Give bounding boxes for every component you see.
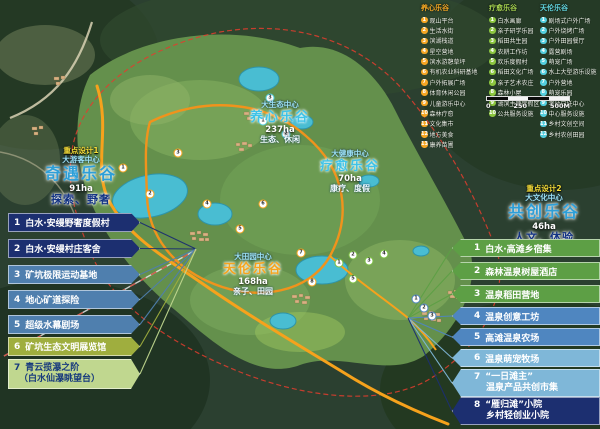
callout-line-1: 7青云揽瀑之阶 <box>8 363 140 374</box>
scale-tick: 0 <box>486 102 491 110</box>
valley-name: 共创乐谷 <box>492 203 596 222</box>
callout-right-4: 4温泉创意工坊 <box>452 307 600 325</box>
valley-area: 70ha <box>312 174 388 184</box>
legend-item: 10中心服务设施 <box>540 109 599 118</box>
legend-item-label: 亲子艺术农庄 <box>498 78 534 87</box>
legend-number-badge: 4 <box>540 48 547 55</box>
legend-number-badge: 12 <box>540 131 547 138</box>
legend-item: 5萌宠广场 <box>540 57 599 66</box>
legend-number-badge: 8 <box>421 89 428 96</box>
callout-right-5: 5高滩温泉农场 <box>452 328 600 346</box>
callout-label: 乡村轻创业小院 <box>486 411 549 422</box>
legend-number-badge: 10 <box>489 110 496 117</box>
legend-number-badge: 10 <box>421 110 428 117</box>
callout-line-2: 温泉产品共创市集 <box>452 383 600 394</box>
legend-number-badge: 4 <box>489 48 496 55</box>
legend-item: 11乡村文创空间 <box>540 119 599 128</box>
valley-area: 237ha <box>238 125 322 135</box>
legend-item-label: 白水画廊 <box>498 16 522 25</box>
valley-area: 168ha <box>210 277 296 287</box>
legend-item: 11文化集市 <box>421 119 487 128</box>
center-label: 大田园中心 <box>210 253 296 262</box>
legend-number-badge: 7 <box>540 79 547 86</box>
valley-theme: 亲子、田园 <box>210 287 296 296</box>
scale-tick: 500M <box>550 102 570 110</box>
legend-item: 12乡村农创田园 <box>540 130 599 139</box>
callout-label: 矿坑极限运动基地 <box>25 268 97 281</box>
legend-item: 2生活水街 <box>421 26 487 35</box>
callout-right-8: 8“雁归滩”小院 乡村轻创业小院 <box>452 397 600 425</box>
callout-number: 5 <box>474 332 480 342</box>
legend-number-badge: 13 <box>421 141 428 148</box>
master-plan-map: 1234567812345123123 养心乐谷 1观山平台 2生活水街 3滨湖… <box>0 0 600 429</box>
legend-item-label: 户外拓展广场 <box>430 78 466 87</box>
callout-right-2: 2森林温泉树屋酒店 <box>452 262 600 280</box>
valley-theme: 康疗、度假 <box>312 184 388 193</box>
legend-number-badge: 2 <box>421 27 428 34</box>
callout-left-6: 6矿坑生态文明展览馆 <box>8 337 140 356</box>
callout-right-7: 7“一日滩主” 温泉产品共创市集 <box>452 369 600 397</box>
callout-line-1: 8“雁归滩”小院 <box>452 400 600 411</box>
legend-item-label: 地方美食 <box>430 130 454 139</box>
legend-item: 8体育休闲公园 <box>421 88 487 97</box>
legend-item-label: 稻田文化广场 <box>498 67 534 76</box>
callout-left-1: 1白水·安缦野奢度假村 <box>8 213 140 232</box>
callout-line-2: （白水仙瀑眺望台） <box>8 374 140 385</box>
legend-item: 9儿童游乐中心 <box>421 99 487 108</box>
legend-number-badge: 2 <box>540 27 547 34</box>
valley-name: 奇遇乐谷 <box>22 165 140 184</box>
callout-right-6: 6温泉萌宠牧场 <box>452 349 600 367</box>
callout-number: 8 <box>474 400 480 411</box>
valley-name: 天伦乐谷 <box>210 262 296 277</box>
legend-item-label: 户外营地 <box>549 78 573 87</box>
legend-item-label: 文化集市 <box>430 119 454 128</box>
callout-left-7: 7青云揽瀑之阶 （白水仙瀑眺望台） <box>8 359 140 389</box>
callout-number: 2 <box>474 266 480 276</box>
legend-item-label: 体育休闲公园 <box>430 88 466 97</box>
legend-number-badge: 5 <box>540 58 547 65</box>
callout-right-3: 3温泉稻田营地 <box>452 285 600 303</box>
callout-label: 温泉创意工坊 <box>485 310 539 323</box>
region-label-tianlun: 大田园中心 天伦乐谷 168ha 亲子、田园 <box>210 253 296 297</box>
legend-item: 4星空营地 <box>421 47 487 56</box>
legend-number-badge: 7 <box>421 79 428 86</box>
legend-header: 养心乐谷 <box>421 3 487 13</box>
region-label-qiyu: 重点设计1 大游客中心 奇遇乐谷 91ha 探索、野奢 <box>22 147 140 207</box>
scale-bar: 0 250 500M <box>486 96 570 110</box>
legend-number-badge: 1 <box>540 17 547 24</box>
legend-number-badge: 11 <box>540 121 547 128</box>
legend-item-label: 户外烧烤广场 <box>549 26 585 35</box>
legend-item-label: 康养苗圃 <box>430 140 454 149</box>
legend-number-badge: 1 <box>489 17 496 24</box>
legend-number-badge: 3 <box>421 38 428 45</box>
legend-number-badge: 10 <box>540 110 547 117</box>
legend-item: 5欢乐度假村 <box>489 57 539 66</box>
legend-item-label: 星空营地 <box>430 47 454 56</box>
callout-label: 白水·安缦野奢度假村 <box>25 216 109 229</box>
legend-number-badge: 3 <box>540 38 547 45</box>
legend-item-label: 户外田园餐厅 <box>549 36 585 45</box>
valley-name: 疗愈乐谷 <box>312 159 388 174</box>
legend-item: 7亲子艺术农庄 <box>489 78 539 87</box>
legend-number-badge: 6 <box>489 69 496 76</box>
legend-number-badge: 12 <box>421 131 428 138</box>
legend-item-label: 水上大型游乐设施 <box>549 67 597 76</box>
legend-number-badge: 5 <box>489 58 496 65</box>
legend-item: 3滨湖栈道 <box>421 36 487 45</box>
legend-item-label: 亲子研学乐园 <box>498 26 534 35</box>
callout-label: “雁归滩”小院 <box>485 400 542 411</box>
callout-label: 森林温泉树屋酒店 <box>485 265 557 278</box>
scale-bar-segments <box>486 96 570 101</box>
legend-item: 2户外烧烤广场 <box>540 26 599 35</box>
legend-item: 4露营剧场 <box>540 47 599 56</box>
legend-number-badge: 1 <box>421 17 428 24</box>
legend-number-badge: 3 <box>489 38 496 45</box>
legend-number-badge: 8 <box>540 89 547 96</box>
legend-item: 4农耕工作坊 <box>489 47 539 56</box>
callout-label: “一日滩主” <box>485 372 533 383</box>
legend-item: 7户外拓展广场 <box>421 78 487 87</box>
callout-label: 白水·高滩乡宿集 <box>485 242 551 255</box>
region-label-gongchuang: 重点设计2 大文化中心 共创乐谷 46ha 人文、体验 <box>492 185 596 245</box>
callout-number: 6 <box>474 353 480 363</box>
legend-item-label: 中心服务设施 <box>549 109 585 118</box>
callout-label: 温泉稻田营地 <box>485 288 539 301</box>
legend-item-label: 森林疗愈 <box>430 109 454 118</box>
callout-number: 7 <box>474 372 480 383</box>
callout-label: 地心矿道探险 <box>25 293 79 306</box>
legend-item-label: 有机农业科研基地 <box>430 67 478 76</box>
valley-theme: 探索、野奢 <box>22 194 140 207</box>
callout-number: 1 <box>474 243 480 253</box>
legend-number-badge: 4 <box>421 48 428 55</box>
legend-item: 6水上大型游乐设施 <box>540 67 599 76</box>
legend-item: 10森林疗愈 <box>421 109 487 118</box>
legend-item: 7户外营地 <box>540 78 599 87</box>
legend-item-label: 萌宠广场 <box>549 57 573 66</box>
legend-column-yangxin: 养心乐谷 1观山平台 2生活水街 3滨湖栈道 4星空营地 5滨水游憩草坪 6有机… <box>421 3 487 151</box>
legend-item: 10公共服务设施 <box>489 109 539 118</box>
legend-item: 3户外田园餐厅 <box>540 36 599 45</box>
legend-item: 1白水画廊 <box>489 16 539 25</box>
legend-item-label: 稻田共生园 <box>498 36 528 45</box>
legend-item-label: 农耕工作坊 <box>498 47 528 56</box>
callout-left-2: 2白水·安缦村庄客舍 <box>8 239 140 258</box>
center-label: 大生态中心 <box>238 101 322 110</box>
callout-label: 白水·安缦村庄客舍 <box>25 242 100 255</box>
callout-number: 4 <box>14 295 20 305</box>
legend-item-label: 乡村文创空间 <box>549 119 585 128</box>
legend-item-label: 露营剧场 <box>549 47 573 56</box>
legend-item: 5滨水游憩草坪 <box>421 57 487 66</box>
region-label-liaoyu: 大健康中心 疗愈乐谷 70ha 康疗、度假 <box>312 150 388 194</box>
legend-item: 1观山平台 <box>421 16 487 25</box>
legend-number-badge: 2 <box>489 27 496 34</box>
legend-item-label: 观山平台 <box>430 16 454 25</box>
legend-item: 12地方美食 <box>421 130 487 139</box>
callout-line-2: 乡村轻创业小院 <box>452 411 600 422</box>
callout-line-1: 7“一日滩主” <box>452 372 600 383</box>
callout-right-1: 1白水·高滩乡宿集 <box>452 239 600 257</box>
region-label-yangxin: 大生态中心 养心乐谷 237ha 生态、休闲 <box>238 101 322 145</box>
callout-number: 3 <box>474 289 480 299</box>
callout-number: 1 <box>14 218 20 228</box>
callout-number: 7 <box>14 363 20 374</box>
callout-label: 高滩温泉农场 <box>485 331 539 344</box>
callout-label: 超级水幕剧场 <box>25 318 79 331</box>
legend-item-label: 儿童游乐中心 <box>430 99 466 108</box>
legend-item-label: 公共服务设施 <box>498 109 534 118</box>
callout-number: 5 <box>14 320 20 330</box>
callout-left-3: 3矿坑极限运动基地 <box>8 265 140 284</box>
legend-number-badge: 5 <box>421 58 428 65</box>
legend-item: 3稻田共生园 <box>489 36 539 45</box>
legend-column-tianlun: 天伦乐谷 1剧场式户外广场 2户外烧烤广场 3户外田园餐厅 4露营剧场 5萌宠广… <box>540 3 599 140</box>
center-label: 大健康中心 <box>312 150 388 159</box>
legend-item-label: 滨湖栈道 <box>430 36 454 45</box>
callout-left-4: 4地心矿道探险 <box>8 290 140 309</box>
legend-number-badge: 6 <box>540 69 547 76</box>
legend-item: 6有机农业科研基地 <box>421 67 487 76</box>
legend-item: 6稻田文化广场 <box>489 67 539 76</box>
legend-item-label: 滨水游憩草坪 <box>430 57 466 66</box>
legend-item: 2亲子研学乐园 <box>489 26 539 35</box>
callout-number: 6 <box>14 342 20 352</box>
valley-name: 养心乐谷 <box>238 110 322 125</box>
legend-item-label: 剧场式户外广场 <box>549 16 591 25</box>
callout-label: 温泉萌宠牧场 <box>485 352 539 365</box>
callout-left-5: 5超级水幕剧场 <box>8 315 140 334</box>
callout-number: 4 <box>474 311 480 321</box>
legend-item-label: 生活水街 <box>430 26 454 35</box>
valley-theme: 生态、休闲 <box>238 135 322 144</box>
scale-tick: 250 <box>513 102 527 110</box>
legend-header: 天伦乐谷 <box>540 3 599 13</box>
legend-item-label: 欢乐度假村 <box>498 57 528 66</box>
legend-number-badge: 11 <box>421 121 428 128</box>
callout-label: 矿坑生态文明展览馆 <box>25 340 106 353</box>
callout-number: 3 <box>14 270 20 280</box>
legend-number-badge: 7 <box>489 79 496 86</box>
legend-number-badge: 9 <box>421 100 428 107</box>
callout-label: （白水仙瀑眺望台） <box>19 374 100 385</box>
legend-header: 疗愈乐谷 <box>489 3 539 13</box>
legend-number-badge: 8 <box>489 89 496 96</box>
callout-label: 温泉产品共创市集 <box>486 383 558 394</box>
legend-item: 13康养苗圃 <box>421 140 487 149</box>
callout-number: 2 <box>14 244 20 254</box>
legend-item-label: 乡村农创田园 <box>549 130 585 139</box>
callout-label: 青云揽瀑之阶 <box>25 363 79 374</box>
legend-number-badge: 6 <box>421 69 428 76</box>
legend-item: 1剧场式户外广场 <box>540 16 599 25</box>
